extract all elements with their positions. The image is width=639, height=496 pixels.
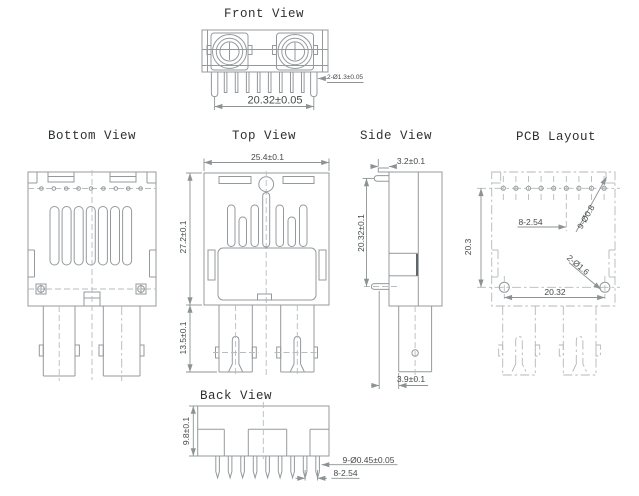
dim-pcb-mount-span: 20.32 <box>544 288 565 297</box>
dim-front-pin-diameter: 2-Ø1.3±0.05 <box>327 74 363 81</box>
dim-top-leg-length: 13.5±0.1 <box>178 321 187 354</box>
top-view-title: Top View <box>232 130 296 143</box>
dim-front-pin-row-span: 20.32±0.05 <box>248 95 303 106</box>
side-view-title: Side View <box>360 130 432 143</box>
dim-back-body-height: 9.8±0.1 <box>182 417 191 445</box>
pcb-layout-title: PCB Layout <box>516 131 596 144</box>
side-view-drawing <box>363 159 443 389</box>
bottom-view-drawing <box>28 170 156 381</box>
dim-side-pin-row-offset: 20.32±0.1 <box>356 214 365 252</box>
dim-pcb-row-spacing: 20.3 <box>464 238 473 255</box>
dim-back-pin-pitch: 8-2.54 <box>333 469 357 478</box>
drawing-geometry <box>0 0 639 496</box>
dim-back-pin-diameter: 9-Ø0.45±0.05 <box>343 455 395 464</box>
dim-top-body-length: 27.2±0.1 <box>178 220 187 253</box>
back-view-title: Back View <box>200 390 272 403</box>
dim-pcb-hole-pitch: 8-2.54 <box>518 217 542 226</box>
bottom-view-title: Bottom View <box>48 130 136 143</box>
front-view-title: Front View <box>224 8 304 21</box>
pcb-layout-drawing <box>477 172 620 375</box>
top-view-drawing <box>186 159 329 379</box>
back-view-drawing <box>189 402 398 481</box>
dim-side-leg-offset: 3.9±0.1 <box>397 374 425 383</box>
technical-drawing-sheet: Front View Bottom View Top View Side Vie… <box>0 0 639 496</box>
dim-side-top-step: 3.2±0.1 <box>397 157 425 166</box>
dim-top-body-width: 25.4±0.1 <box>251 152 284 161</box>
